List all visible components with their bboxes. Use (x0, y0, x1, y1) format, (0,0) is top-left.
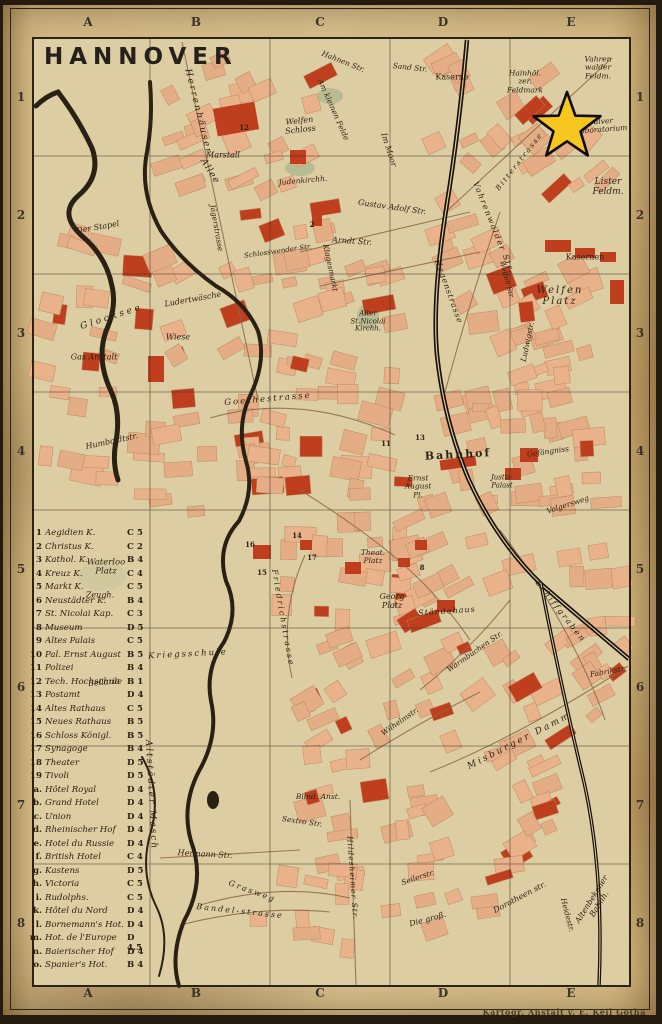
legend-n: Aegidien K. (45, 528, 127, 538)
map-label: Justiz- Palast (491, 474, 513, 489)
legend-n: British Hotel (45, 852, 127, 862)
legend-entry: 5Markt K.C 5 (28, 582, 152, 596)
legend-r: D 4 (127, 906, 152, 916)
legend-entry: 17SynagogeB 4 (28, 744, 152, 758)
legend-entry: 6Neustädter K.B 4 (28, 596, 152, 610)
legend-entry: d.Rheinischer HofD 4 (28, 825, 152, 839)
legend-n: Kreuz K. (45, 569, 127, 579)
map-label: 17 (307, 554, 317, 562)
map-label: Lister Feldm. (592, 178, 623, 198)
map-label: 11 (381, 440, 391, 448)
grid-label: 5 (636, 562, 644, 576)
legend-k: b. (28, 798, 42, 808)
legend: 1Aegidien K.C 52Christus K.C 23Kathol. K… (28, 528, 152, 974)
legend-k: o. (28, 960, 42, 970)
legend-r: B 4 (127, 663, 152, 673)
grid-label: A (83, 986, 92, 1000)
legend-r: D 4 (127, 920, 152, 930)
legend-entry: 3Kathol. K.B 4 (28, 555, 152, 569)
grid-label: 1 (17, 90, 25, 104)
legend-k: h. (28, 879, 42, 889)
legend-entry: h.VictoriaC 5 (28, 879, 152, 893)
legend-entry: f.British HotelC 4 (28, 852, 152, 866)
legend-r: B 5 (127, 650, 152, 660)
map-label: Kaserne (435, 74, 468, 83)
grid-label: 6 (17, 680, 25, 694)
legend-n: Hotel du Russie (45, 839, 127, 849)
legend-n: Postamt (45, 690, 127, 700)
grid-label: D (438, 986, 448, 1000)
legend-n: Kathol. K. (45, 555, 127, 565)
legend-n: Theater (45, 758, 127, 768)
grid-label: D (438, 15, 448, 29)
legend-entry: 12Tech. HochschuleB 1 (28, 677, 152, 691)
legend-entry: g.KastensD 5 (28, 866, 152, 880)
grid-label: 4 (17, 444, 25, 458)
legend-r: B 4 (127, 960, 152, 970)
map-label: Welfen Platz (537, 285, 584, 307)
grid-label: 7 (17, 798, 25, 812)
legend-k: d. (28, 825, 42, 835)
map-page: HANNOVER HerrenhäuserAlleeJägerstrasseWe… (0, 0, 662, 1024)
map-label: Gas Anstalt (71, 354, 118, 363)
legend-n: Bornemann's Hot. (45, 920, 127, 930)
grid-label: 8 (17, 916, 25, 930)
legend-entry: 13PostamtD 4 (28, 690, 152, 704)
grid-label: 3 (17, 326, 25, 340)
legend-entry: 10Pal. Ernst AugustB 5 (28, 650, 152, 664)
legend-k: 12 (28, 677, 42, 687)
legend-r: B 1 (127, 677, 152, 687)
legend-k: 19 (28, 771, 42, 781)
legend-entry: a.Hôtel RoyalD 4 (28, 785, 152, 799)
legend-k: 8 (28, 623, 42, 633)
legend-n: Spanier's Hot. (45, 960, 127, 970)
legend-n: Neustädter K. (45, 596, 127, 606)
legend-n: Neues Rathaus (45, 717, 127, 727)
map-label: Hainhöl. zer. Feldmark (507, 70, 543, 95)
map-label: 13 (415, 434, 425, 442)
map-label: 12 (239, 124, 249, 132)
legend-k: 7 (28, 609, 42, 619)
legend-k: e. (28, 839, 42, 849)
legend-entry: 8MuseumD 5 (28, 623, 152, 637)
legend-entry: i.Rudolphs.C 5 (28, 893, 152, 907)
legend-k: k. (28, 906, 42, 916)
grid-label: 6 (636, 680, 644, 694)
legend-r: C 5 (127, 704, 152, 714)
map-label: 15 (257, 569, 267, 577)
legend-r: B 4 (127, 744, 152, 754)
legend-n: Rheinischer Hof (45, 825, 127, 835)
legend-r: D 5 (127, 623, 152, 633)
legend-k: 13 (28, 690, 42, 700)
legend-n: Hot. de l'Europe (45, 933, 127, 943)
legend-k: i. (28, 893, 42, 903)
legend-k: 18 (28, 758, 42, 768)
legend-k: 4 (28, 569, 42, 579)
legend-n: Hôtel Royal (45, 785, 127, 795)
map-label: Ernst August Pl. (405, 475, 432, 500)
legend-r: C 5 (127, 528, 152, 538)
legend-entry: 2Christus K.C 2 (28, 542, 152, 556)
grid-label: E (566, 986, 575, 1000)
legend-r: D 4 (127, 825, 152, 835)
legend-entry: 4Kreuz K.C 4 (28, 569, 152, 583)
grid-label: 2 (636, 208, 644, 222)
legend-entry: 18TheaterD 5 (28, 758, 152, 772)
legend-entry: k.Hôtel du NordD 4 (28, 906, 152, 920)
map-label: 16 (245, 541, 255, 549)
legend-k: 2 (28, 542, 42, 552)
legend-entry: 14Altes RathausC 5 (28, 704, 152, 718)
grid-label: 3 (636, 326, 644, 340)
legend-k: 3 (28, 555, 42, 565)
map-label: Welfen Schloss (284, 116, 316, 137)
legend-r: C 5 (127, 582, 152, 592)
legend-r: D 5 (127, 758, 152, 768)
legend-n: Grand Hotel (45, 798, 127, 808)
legend-entry: 15Neues RathausB 5 (28, 717, 152, 731)
legend-n: Hôtel du Nord (45, 906, 127, 916)
legend-k: 16 (28, 731, 42, 741)
legend-k: 9 (28, 636, 42, 646)
map-label: 2 (310, 221, 315, 229)
map-label: Vahren walder Feldm. (585, 56, 612, 81)
map-label: Marstall (206, 152, 240, 161)
legend-entry: 19TivoliD 5 (28, 771, 152, 785)
legend-r: B 5 (127, 731, 152, 741)
legend-r: B 5 (127, 717, 152, 727)
grid-label: A (83, 15, 92, 29)
legend-entry: b.Grand HotelD 4 (28, 798, 152, 812)
legend-entry: 7St. Nicolai Kap.C 3 (28, 609, 152, 623)
legend-n: Polizei (45, 663, 127, 673)
grid-label: 2 (17, 208, 25, 222)
legend-n: Museum (45, 623, 127, 633)
legend-k: 6 (28, 596, 42, 606)
legend-k: 17 (28, 744, 42, 754)
legend-entry: 11PolizeiB 4 (28, 663, 152, 677)
legend-n: Markt K. (45, 582, 127, 592)
grid-label: 5 (17, 562, 25, 576)
legend-n: St. Nicolai Kap. (45, 609, 127, 619)
legend-k: 11 (28, 663, 42, 673)
legend-k: l. (28, 920, 42, 930)
grid-label: C (315, 986, 325, 1000)
map-label: Wiese (166, 334, 190, 343)
legend-r: C 5 (127, 879, 152, 889)
legend-r: C 5 (127, 893, 152, 903)
legend-r: C 5 (127, 636, 152, 646)
map-label: Alter St.Nicolai Kirchh. (351, 310, 386, 333)
legend-r: C 4 (127, 852, 152, 862)
legend-entry: n.Baierischer HofD 4 (28, 947, 152, 961)
legend-n: Altes Rathaus (45, 704, 127, 714)
legend-n: Rudolphs. (45, 893, 127, 903)
attribution: Kartogr. Anstalt v. E. Keil Gotha (483, 1007, 646, 1017)
legend-k: 5 (28, 582, 42, 592)
map-label: Blind. Anst. (296, 793, 340, 801)
legend-r: C 2 (127, 542, 152, 552)
legend-k: m. (28, 933, 42, 943)
grid-label: 1 (636, 90, 644, 104)
legend-r: B 4 (127, 555, 152, 565)
legend-entry: 9Altes PalaisC 5 (28, 636, 152, 650)
grid-label: 8 (636, 916, 644, 930)
legend-r: C 3 (127, 609, 152, 619)
legend-r: C 4 (127, 569, 152, 579)
legend-k: g. (28, 866, 42, 876)
legend-r: D 4 (127, 812, 152, 822)
legend-n: Christus K. (45, 542, 127, 552)
map-label: 8 (420, 564, 425, 572)
page-title: HANNOVER (44, 44, 238, 70)
legend-n: Tech. Hochschule (45, 677, 127, 687)
legend-k: 14 (28, 704, 42, 714)
legend-r: D 4 (127, 785, 152, 795)
map-label: Georg Platz (380, 593, 405, 611)
grid-label: B (191, 986, 201, 1000)
legend-r: D 5 (127, 771, 152, 781)
legend-r: D 5 (127, 866, 152, 876)
legend-entry: 16Schloss Königl.B 5 (28, 731, 152, 745)
legend-n: Synagoge (45, 744, 127, 754)
map-label: Kasernen (566, 254, 604, 263)
legend-entry: 1Aegidien K.C 5 (28, 528, 152, 542)
legend-n: Victoria (45, 879, 127, 889)
grid-label: 7 (636, 798, 644, 812)
grid-label: C (315, 15, 325, 29)
grid-label: E (566, 15, 575, 29)
legend-entry: e.Hotel du RussieD 4 (28, 839, 152, 853)
legend-n: Union (45, 812, 127, 822)
legend-k: a. (28, 785, 42, 795)
map-label: 14 (292, 532, 302, 540)
legend-k: n. (28, 947, 42, 957)
legend-r: D 4 (127, 690, 152, 700)
legend-n: Schloss Königl. (45, 731, 127, 741)
grid-label: B (191, 15, 201, 29)
legend-entry: m.Hot. de l'EuropeD 4.5 (28, 933, 152, 947)
legend-entry: l.Bornemann's Hot.D 4 (28, 920, 152, 934)
grid-label: 4 (636, 444, 644, 458)
legend-k: 1 (28, 528, 42, 538)
legend-n: Baierischer Hof (45, 947, 127, 957)
legend-k: 15 (28, 717, 42, 727)
legend-k: f. (28, 852, 42, 862)
legend-n: Pal. Ernst August (45, 650, 127, 660)
legend-r: D 4 (127, 947, 152, 957)
legend-n: Altes Palais (45, 636, 127, 646)
legend-entry: o.Spanier's Hot.B 4 (28, 960, 152, 974)
map-label: Theat. Platz (361, 549, 385, 566)
legend-r: B 4 (127, 596, 152, 606)
legend-n: Tivoli (45, 771, 127, 781)
legend-k: c. (28, 812, 42, 822)
legend-k: 10 (28, 650, 42, 660)
legend-n: Kastens (45, 866, 127, 876)
legend-entry: c.UnionD 4 (28, 812, 152, 826)
legend-r: D 4 (127, 798, 152, 808)
legend-r: D 4 (127, 839, 152, 849)
